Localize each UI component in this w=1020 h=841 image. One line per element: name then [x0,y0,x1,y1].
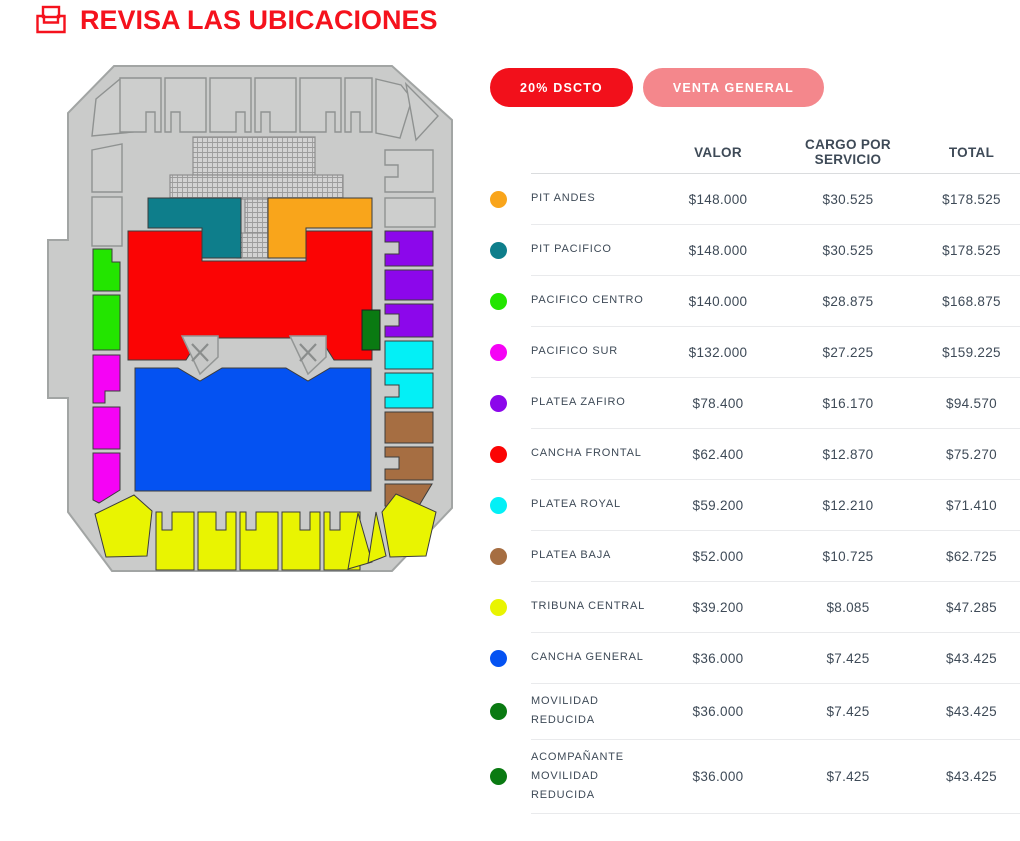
total-value: $62.725 [923,549,1020,564]
table-header: VALOR CARGO POR SERVICIO TOTAL [490,131,1020,174]
section-name: PIT ANDES [531,189,663,208]
valor-value: $62.400 [663,447,773,462]
right-sections[interactable] [385,231,433,514]
valor-value: $39.200 [663,600,773,615]
valor-value: $132.000 [663,345,773,360]
cargo-value: $7.425 [773,704,923,719]
column-header-total: TOTAL [923,145,1020,160]
section-color-dot [490,191,507,208]
total-value: $43.425 [923,704,1020,719]
valor-value: $148.000 [663,192,773,207]
cargo-value: $7.425 [773,769,923,784]
cargo-value: $30.525 [773,243,923,258]
cargo-value: $10.725 [773,549,923,564]
column-header-valor: VALOR [663,145,773,160]
table-row[interactable]: TRIBUNA CENTRAL $39.200 $8.085 $47.285 [490,582,1020,633]
table-row[interactable]: PLATEA ROYAL $59.200 $12.210 $71.410 [490,480,1020,531]
cargo-value: $28.875 [773,294,923,309]
cargo-value: $8.085 [773,600,923,615]
section-name: PLATEA ROYAL [531,495,663,514]
total-value: $43.425 [923,651,1020,666]
stadium-map [40,56,460,580]
section-name: CANCHA GENERAL [531,648,663,667]
page: REVISA LAS UBICACIONES [0,0,1020,841]
section-color-dot [490,242,507,259]
table-row[interactable]: PIT ANDES $148.000 $30.525 $178.525 [490,174,1020,225]
valor-value: $140.000 [663,294,773,309]
table-row[interactable]: PACIFICO CENTRO $140.000 $28.875 $168.87… [490,276,1020,327]
map-section-movilidad-reducida[interactable] [362,310,380,350]
filter-buttons: 20% DSCTO VENTA GENERAL [490,68,824,107]
table-row[interactable]: PLATEA BAJA $52.000 $10.725 $62.725 [490,531,1020,582]
section-color-dot [490,497,507,514]
total-value: $94.570 [923,396,1020,411]
total-value: $159.225 [923,345,1020,360]
section-color-dot [490,703,507,720]
map-section-platea-zafiro [385,270,433,300]
section-name: TRIBUNA CENTRAL [531,597,663,616]
total-value: $168.875 [923,294,1020,309]
section-name: PLATEA ZAFIRO [531,393,663,412]
section-name: MOVILIDAD REDUCIDA [531,692,663,731]
section-color-dot [490,446,507,463]
section-name: CANCHA FRONTAL [531,444,663,463]
valor-value: $36.000 [663,769,773,784]
total-value: $178.525 [923,243,1020,258]
section-color-dot [490,599,507,616]
cargo-value: $27.225 [773,345,923,360]
valor-value: $148.000 [663,243,773,258]
section-color-dot [490,395,507,412]
table-row[interactable]: CANCHA FRONTAL $62.400 $12.870 $75.270 [490,429,1020,480]
total-value: $178.525 [923,192,1020,207]
section-color-dot [490,344,507,361]
valor-value: $36.000 [663,704,773,719]
page-title: REVISA LAS UBICACIONES [80,5,438,36]
left-sections[interactable] [93,249,120,503]
cargo-value: $16.170 [773,396,923,411]
cargo-value: $30.525 [773,192,923,207]
table-row[interactable]: ACOMPAÑANTE MOVILIDAD REDUCIDA $36.000 $… [490,740,1020,815]
cargo-value: $12.210 [773,498,923,513]
total-value: $75.270 [923,447,1020,462]
section-name: PACIFICO CENTRO [531,291,663,310]
table-row[interactable]: PIT PACIFICO $148.000 $30.525 $178.525 [490,225,1020,276]
section-color-dot [490,650,507,667]
map-section-cancha-general[interactable] [135,368,371,491]
discount-filter-button[interactable]: 20% DSCTO [490,68,633,107]
valor-value: $52.000 [663,549,773,564]
table-row[interactable]: PLATEA ZAFIRO $78.400 $16.170 $94.570 [490,378,1020,429]
general-sale-filter-button[interactable]: VENTA GENERAL [643,68,824,107]
cargo-value: $12.870 [773,447,923,462]
page-header: REVISA LAS UBICACIONES [34,4,438,36]
price-table: VALOR CARGO POR SERVICIO TOTAL PIT ANDES… [490,131,1020,814]
table-body: PIT ANDES $148.000 $30.525 $178.525 PIT … [490,174,1020,814]
total-value: $71.410 [923,498,1020,513]
map-section-platea-baja [385,412,433,443]
section-name: ACOMPAÑANTE MOVILIDAD REDUCIDA [531,748,663,806]
seat-icon [34,4,68,36]
table-row[interactable]: CANCHA GENERAL $36.000 $7.425 $43.425 [490,633,1020,684]
map-section-pacifico-sur [93,407,120,449]
total-value: $47.285 [923,600,1020,615]
column-header-cargo: CARGO POR SERVICIO [773,137,923,167]
valor-value: $36.000 [663,651,773,666]
section-color-dot [490,548,507,565]
valor-value: $59.200 [663,498,773,513]
section-name: PACIFICO SUR [531,342,663,361]
section-name: PLATEA BAJA [531,546,663,565]
valor-value: $78.400 [663,396,773,411]
map-section-platea-royal [385,341,433,369]
section-color-dot [490,293,507,310]
map-section-pacifico-centro [93,295,120,350]
total-value: $43.425 [923,769,1020,784]
section-name: PIT PACIFICO [531,240,663,259]
table-row[interactable]: MOVILIDAD REDUCIDA $36.000 $7.425 $43.42… [490,684,1020,740]
section-color-dot [490,768,507,785]
cargo-value: $7.425 [773,651,923,666]
table-row[interactable]: PACIFICO SUR $132.000 $27.225 $159.225 [490,327,1020,378]
